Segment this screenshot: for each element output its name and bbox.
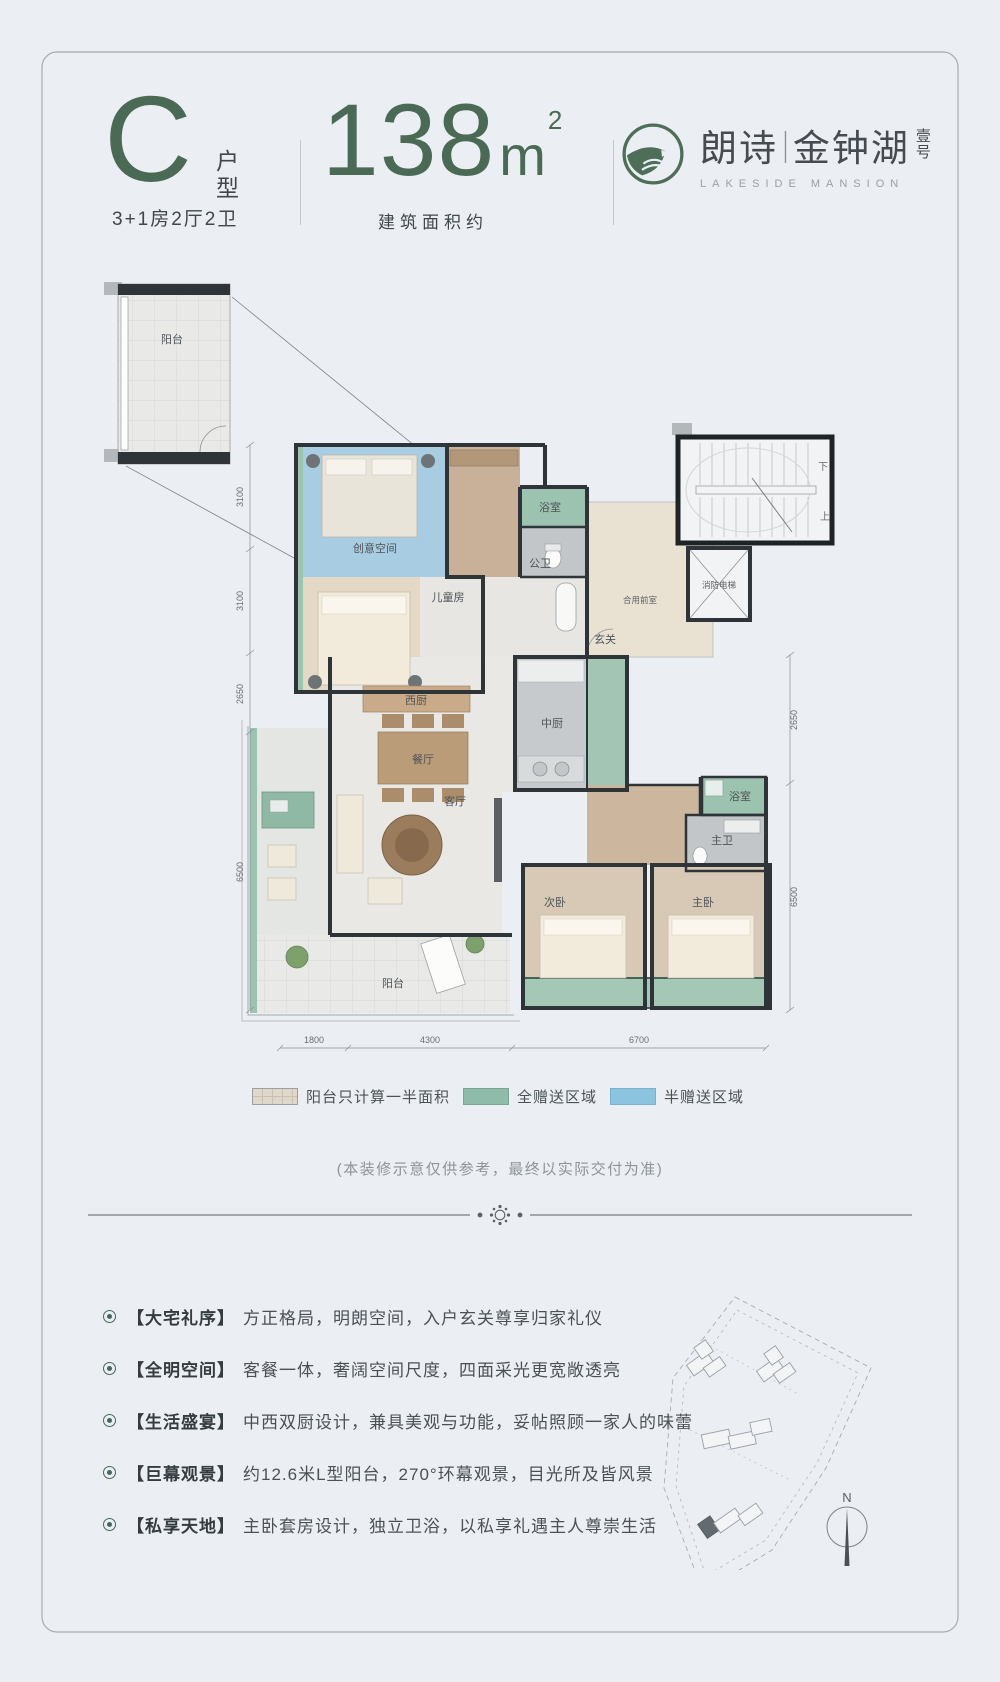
room-label-public-wc: 公卫 (529, 558, 551, 570)
divider-flower-ornament (490, 1205, 510, 1225)
inset-balcony-detail: 阳台 (104, 282, 230, 464)
stairwell: 下 上 (672, 423, 832, 543)
brand-name-cn2: 金钟湖 (793, 118, 910, 172)
feature-tag: 【私享天地】 (127, 1512, 235, 1537)
header-divider (300, 140, 301, 225)
unit-type-label-char: 型 (216, 175, 239, 202)
room-label-dining: 餐厅 (412, 752, 434, 766)
bullet-icon (103, 1466, 116, 1479)
north-label: N (842, 1490, 851, 1505)
feature-tag: 【全明空间】 (127, 1356, 235, 1381)
legend-label: 半赠送区域 (664, 1086, 744, 1107)
unit-type-label-char: 户 (216, 148, 239, 175)
room-label-balcony: 阳台 (382, 976, 404, 990)
room-label-west-kitchen: 西厨 (405, 694, 427, 707)
legend-label: 全赠送区域 (517, 1086, 597, 1107)
unit-type-letter: C (104, 78, 192, 200)
bullet-icon (103, 1414, 116, 1427)
dim-left-2: 2650 (235, 684, 245, 704)
room-label-bath-right: 浴室 (729, 789, 751, 803)
area-number: 138 (322, 84, 495, 196)
legend-item-balcony-half: 阳台只计算一半面积 (252, 1086, 450, 1107)
disclaimer-note: (本装修示意仅供参考，最终以实际交付为准) (0, 1158, 1000, 1179)
legend-label: 阳台只计算一半面积 (306, 1086, 450, 1107)
feature-tag: 【生活盛宴】 (127, 1408, 235, 1433)
brand-suffix-char: 壹 (916, 129, 931, 145)
dim-bottom-1: 4300 (420, 1035, 440, 1045)
dim-right-0: 2650 (789, 710, 799, 730)
room-label-living: 客厅 (444, 794, 466, 808)
header-divider (613, 140, 614, 225)
north-compass: N (827, 1490, 867, 1566)
feature-desc: 方正格局，明朗空间，入户玄关尊享归家礼仪 (243, 1304, 603, 1329)
feature-item: 【全明空间】 客餐一体，奢阔空间尺度，四面采光更宽敞透亮 (103, 1354, 693, 1383)
brand-logo-icon (620, 121, 686, 187)
unit-spec: 3+1房2厅2卫 (112, 204, 238, 231)
legend-swatch-half-gift (610, 1088, 656, 1105)
floor-plan: 阳台 (100, 270, 900, 1060)
area-superscript: 2 (548, 105, 562, 136)
room-label-fire-elevator: 消防电梯 (702, 580, 737, 590)
dim-left-3: 6500 (235, 862, 245, 882)
feature-item: 【大宅礼序】 方正格局，明朗空间，入户玄关尊享归家礼仪 (103, 1302, 693, 1331)
dim-bottom-0: 1800 (304, 1035, 324, 1045)
brand-logo: 朗诗 | 金钟湖 壹 号 LAKESIDE MANSION (620, 118, 931, 190)
brand-name-en: LAKESIDE MANSION (700, 178, 931, 190)
legend-item-half-gift: 半赠送区域 (610, 1086, 744, 1107)
compass-needle (845, 1508, 850, 1566)
poster-page: C 户 型 3+1房2厅2卫 138 m 2 建筑面积约 朗诗 | 金钟湖 壹 … (0, 0, 1000, 1682)
dim-left-1: 3100 (235, 591, 245, 611)
legend: 阳台只计算一半面积 全赠送区域 半赠送区域 (252, 1086, 744, 1107)
zoom-indicator-line (126, 466, 316, 570)
room-label-chinese-kitchen: 中厨 (541, 717, 563, 730)
unit-type-label: 户 型 (216, 148, 239, 202)
feature-desc: 主卧套房设计，独立卫浴，以私享礼遇主人尊崇生活 (243, 1512, 657, 1537)
room-label-creative: 创意空间 (353, 541, 397, 555)
room-label-bath-top: 浴室 (539, 500, 561, 514)
legend-item-full-gift: 全赠送区域 (463, 1086, 597, 1107)
feature-list: 【大宅礼序】 方正格局，明朗空间，入户玄关尊享归家礼仪 【全明空间】 客餐一体，… (103, 1302, 693, 1562)
feature-tag: 【巨幕观景】 (127, 1460, 235, 1485)
room-label-master-wc: 主卫 (711, 834, 733, 847)
legend-swatch-balcony-tile (252, 1088, 298, 1105)
area-figure: 138 m 2 (322, 84, 560, 196)
stair-label-up: 上 (820, 511, 830, 523)
zoom-indicator-line (232, 297, 415, 446)
bullet-icon (103, 1518, 116, 1531)
legend-swatch-full-gift (463, 1088, 509, 1105)
section-divider (88, 1202, 912, 1228)
dim-bottom-2: 6700 (629, 1035, 649, 1045)
feature-desc: 客餐一体，奢阔空间尺度，四面采光更宽敞透亮 (243, 1356, 621, 1381)
brand-logo-text: 朗诗 | 金钟湖 壹 号 LAKESIDE MANSION (700, 118, 931, 190)
fire-elevator: 消防电梯 (688, 548, 750, 620)
feature-desc: 约12.6米L型阳台，270°环幕观景，目光所及皆风景 (243, 1460, 654, 1485)
dim-right-1: 6500 (789, 887, 799, 907)
brand-suffix-char: 号 (916, 145, 931, 161)
brand-name-suffix: 壹 号 (916, 129, 931, 161)
feature-item: 【生活盛宴】 中西双厨设计，兼具美观与功能，妥帖照顾一家人的味蕾 (103, 1406, 693, 1435)
feature-item: 【巨幕观景】 约12.6米L型阳台，270°环幕观景，目光所及皆风景 (103, 1458, 693, 1487)
room-label-inset-balcony: 阳台 (161, 332, 183, 346)
brand-name-separator: | (783, 126, 787, 165)
area-unit: m (499, 123, 546, 188)
dim-left-0: 3100 (235, 487, 245, 507)
room-label-foyer: 玄关 (594, 632, 616, 646)
bullet-icon (103, 1310, 116, 1323)
feature-item: 【私享天地】 主卧套房设计，独立卫浴，以私享礼遇主人尊崇生活 (103, 1510, 693, 1539)
stair-label-down: 下 (818, 462, 828, 473)
site-buildings (681, 1339, 796, 1548)
room-label-kids: 儿童房 (432, 590, 465, 604)
feature-tag: 【大宅礼序】 (127, 1304, 235, 1329)
room-label-master-bedroom: 主卧 (692, 896, 714, 909)
area-caption: 建筑面积约 (328, 208, 538, 233)
bullet-icon (103, 1362, 116, 1375)
site-plan: N (620, 1230, 920, 1570)
room-label-second-bedroom: 次卧 (544, 895, 566, 909)
room-label-shared-lobby: 合用前室 (623, 595, 658, 605)
brand-name-cn1: 朗诗 (700, 118, 778, 172)
